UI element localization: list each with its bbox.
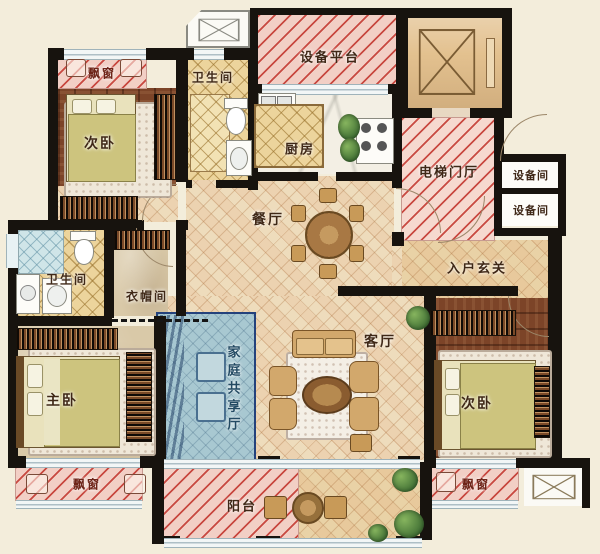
stove-burner [361, 141, 371, 151]
sofa-cushion [296, 338, 324, 355]
shower-bathroom-left [18, 230, 64, 274]
label-cloakroom: 衣帽间 [126, 288, 168, 305]
dining-chair [319, 264, 337, 279]
window-bay-bottom-right-outer [430, 500, 518, 509]
bed-headboard [434, 360, 442, 450]
label-family-shared-hall: 家庭共享厅 [224, 345, 243, 435]
pillow [445, 368, 460, 390]
wall [252, 172, 318, 181]
wall [8, 456, 26, 468]
wall [152, 460, 164, 544]
wall [250, 8, 258, 52]
dining-chair [349, 245, 364, 262]
bay-stool [124, 474, 146, 494]
bay-stool [120, 59, 142, 77]
window-bedroom2-bay [436, 459, 516, 469]
stove-burner [377, 123, 387, 133]
plant [392, 468, 418, 492]
wall [558, 154, 566, 236]
dining-chair [291, 205, 306, 222]
washer-drum [20, 285, 36, 301]
label-bedroom-bottom-right: 次卧 [461, 393, 493, 413]
pillow [445, 394, 460, 416]
sofa-cushion [325, 338, 353, 355]
door-building-lobby [500, 114, 547, 161]
kitchen-island [254, 104, 324, 168]
dining-table [305, 211, 353, 259]
label-equipment-room-upper: 设备间 [513, 167, 549, 183]
plant [338, 114, 360, 140]
pillow [27, 392, 43, 416]
family-hall-seat-2 [196, 392, 226, 422]
plant [368, 524, 388, 542]
wall [216, 180, 250, 188]
floor-dining [186, 176, 394, 298]
wall [396, 108, 432, 118]
wardrobe-bedroom-bottom-right [430, 310, 516, 336]
armchair [269, 398, 297, 430]
side-stool [350, 434, 372, 452]
label-bay-window-bottom-left: 飘窗 [73, 476, 101, 493]
label-living: 客厅 [364, 331, 396, 351]
armchair [349, 361, 379, 393]
wall [336, 172, 394, 181]
bed-headboard [16, 356, 24, 448]
cabinet-bedroom-bottom-right [534, 366, 550, 438]
sink-bathroom-top-basin [230, 147, 248, 170]
dining-chair [349, 205, 364, 222]
label-bedroom-top-left: 次卧 [84, 133, 116, 153]
plant [406, 306, 430, 330]
wall [176, 48, 188, 182]
wall [496, 188, 560, 194]
floor-plan: 飘窗 卫生间 设备平台 次卧 厨房 电梯门厅 设备间 设备间 餐厅 入户玄关 卫… [0, 0, 600, 554]
label-bathroom-left: 卫生间 [46, 271, 88, 288]
label-entry-foyer: 入户玄关 [447, 258, 507, 277]
label-bay-window-top-left: 飘窗 [88, 65, 116, 82]
coffee-table [302, 376, 352, 414]
elevator-door-panel [486, 38, 495, 88]
wardrobe-bedroom-top-left-bottom [60, 196, 138, 220]
label-dining: 餐厅 [252, 209, 284, 229]
stove-burner [361, 123, 371, 133]
balcony-chair [264, 496, 287, 519]
wall [470, 108, 512, 118]
label-bathroom-top: 卫生间 [192, 69, 234, 86]
toilet-bathroom-top-bowl [226, 107, 246, 135]
wall [176, 220, 186, 316]
window-bay-bottom-left-outer [16, 500, 142, 509]
wall [502, 8, 512, 118]
wardrobe-cloakroom [114, 230, 170, 250]
dining-chair [291, 245, 306, 262]
dresser-master [126, 352, 152, 442]
pillow [96, 99, 116, 114]
plant [394, 510, 424, 538]
wall [250, 8, 402, 15]
wall [392, 232, 404, 246]
wardrobe-master [16, 328, 118, 350]
toilet-bathroom-left-bowl [74, 239, 94, 265]
label-master-bedroom: 主卧 [46, 390, 78, 410]
window-balcony-slider [164, 459, 420, 469]
label-kitchen: 厨房 [285, 139, 315, 158]
sink-bathroom-left-basin [47, 285, 67, 307]
wall [48, 48, 58, 230]
window-master-bay [26, 458, 140, 468]
wall [516, 458, 590, 468]
armchair [269, 366, 297, 396]
label-equipment-platform: 设备平台 [300, 47, 360, 66]
wall [582, 468, 590, 508]
balcony-chair [324, 496, 347, 519]
bay-stool [436, 472, 456, 492]
stove-burner [377, 141, 387, 151]
wardrobe-bedroom-top-left-side [154, 94, 176, 180]
label-bay-window-bottom-right: 飘窗 [462, 476, 490, 493]
wall [104, 226, 114, 318]
ac-platform-bottom-right-x-icon [532, 474, 576, 500]
dashed-opening-line [112, 319, 208, 322]
window-bathroom-top [194, 49, 224, 60]
balcony-table [292, 492, 324, 524]
pillow [72, 99, 92, 114]
ac-platform-top-x-icon [198, 18, 240, 42]
armchair [349, 397, 379, 431]
wall [494, 154, 502, 236]
wall [396, 8, 408, 118]
wall [8, 316, 112, 326]
label-elevator-hall: 电梯门厅 [419, 162, 479, 181]
bay-stool [66, 59, 86, 77]
wall [186, 180, 192, 188]
elevator-shaft-x-icon [418, 28, 476, 96]
plant [340, 138, 360, 162]
pillow [27, 364, 43, 388]
elevator-opening [432, 108, 470, 117]
bay-stool [26, 474, 48, 494]
wall [494, 228, 566, 236]
wall [8, 220, 144, 230]
label-equipment-room-lower: 设备间 [513, 202, 549, 218]
label-balcony: 阳台 [227, 496, 257, 515]
dining-chair [319, 188, 337, 203]
wall [396, 8, 512, 18]
family-hall-seat-1 [196, 352, 226, 382]
